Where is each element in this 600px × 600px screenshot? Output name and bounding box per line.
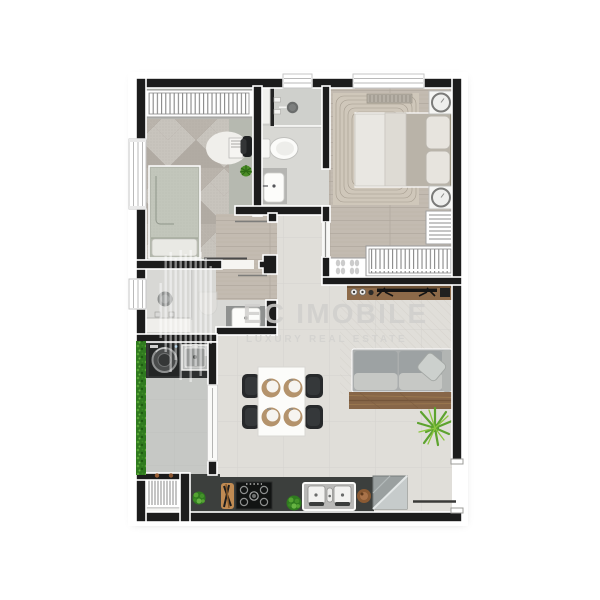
svg-text:LUXURY REAL ESTATE: LUXURY REAL ESTATE xyxy=(246,334,408,345)
svg-text:EC IMOBILE: EC IMOBILE xyxy=(243,298,428,329)
